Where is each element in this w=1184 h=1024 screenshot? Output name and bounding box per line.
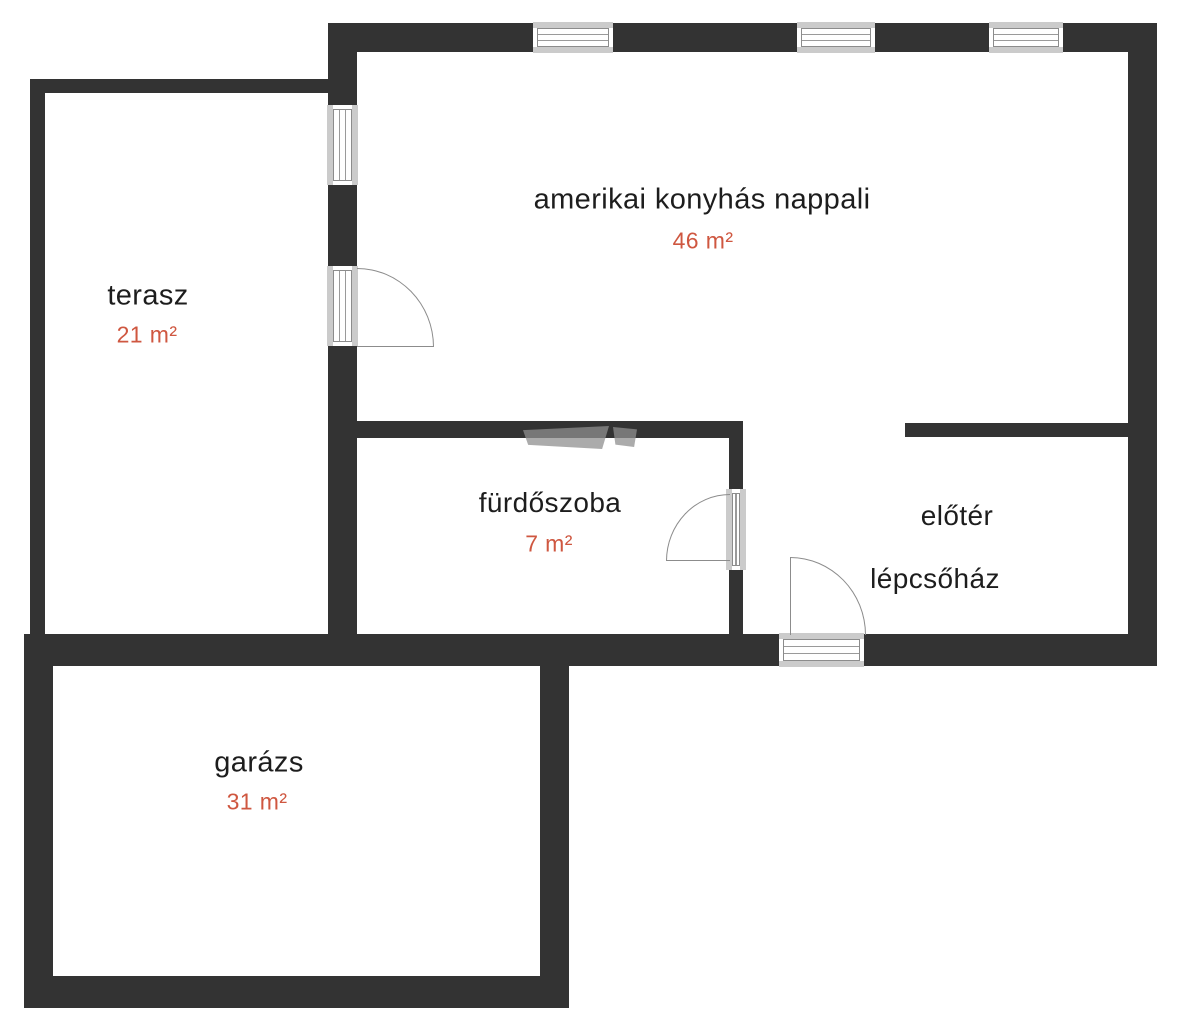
wall-garage-bottom [24,976,569,1008]
terrace-door-leaf [327,266,358,346]
terrace-area: 21 m² [117,322,178,349]
window-icon [533,22,613,53]
window-icon [989,22,1063,53]
window-icon [797,22,875,53]
terrace-name: terasz [107,280,188,313]
wall-terrace-top [30,79,330,93]
window-icon [327,105,358,185]
staircase-name: lépcsőház [870,563,1000,595]
foyer-name: előtér [921,500,993,532]
watermark-remnant [613,427,637,447]
floor-plan: amerikai konyhás nappali 46 m² terasz 21… [0,0,1184,1024]
wall-garage-left [24,666,53,1008]
bathroom-area: 7 m² [525,531,573,558]
wall-living-right [1128,23,1157,666]
living-room-area: 46 m² [673,228,734,255]
wall-middle-band [24,634,1157,666]
wall-foyer-top [905,423,1128,437]
garage-area: 31 m² [227,789,288,816]
door-swing-icon [666,494,730,561]
garage-name: garázs [214,747,303,780]
living-room-name: amerikai konyhás nappali [534,184,871,217]
entry-door-leaf [779,633,864,667]
wall-garage-right [540,666,569,1008]
bathroom-name: fürdőszoba [479,487,622,519]
door-swing-icon [357,268,434,347]
wall-terrace-left [30,79,45,634]
door-swing-icon [790,557,866,635]
